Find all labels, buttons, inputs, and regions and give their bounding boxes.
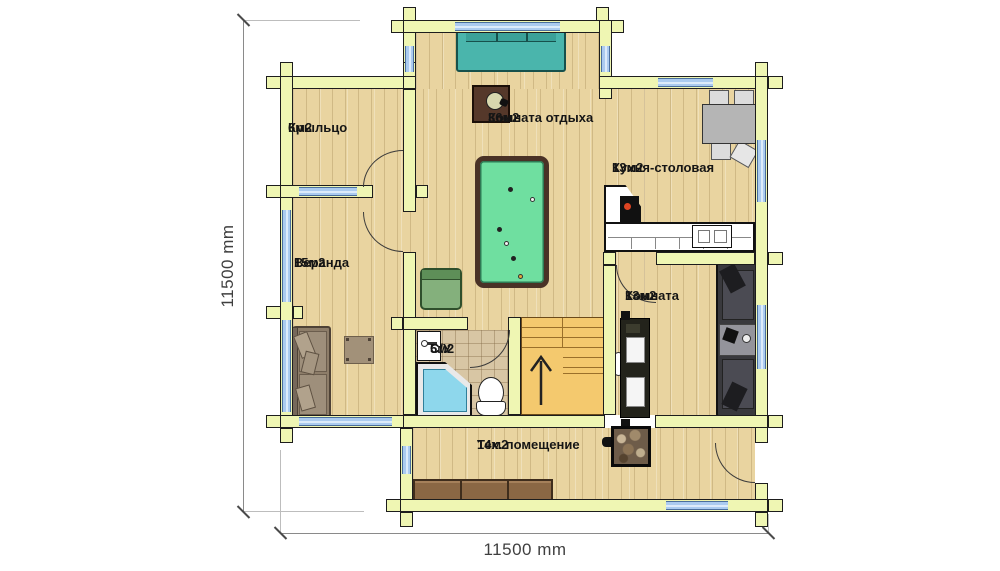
veranda-sofa — [287, 326, 331, 420]
log-end — [391, 20, 404, 33]
log-end — [768, 415, 783, 428]
window-lounge-top — [455, 22, 560, 31]
staircase — [521, 317, 605, 415]
billiard-ball — [497, 227, 502, 232]
window-veranda-bottom — [299, 417, 392, 426]
extension-line — [280, 450, 281, 533]
teal-sofa — [456, 29, 566, 72]
log-end — [768, 499, 783, 512]
log-end — [755, 62, 768, 77]
window-tech-bottom — [666, 501, 728, 510]
dimension-line-left — [243, 20, 244, 512]
tv-cabinet — [620, 318, 650, 418]
billiard-ball — [530, 197, 535, 202]
wall-room-left — [603, 265, 616, 415]
room-area: 36м2 — [488, 110, 519, 126]
dining-table — [702, 104, 758, 144]
armchair-back — [422, 270, 460, 280]
wall-top-left — [280, 76, 416, 89]
stair-treads — [563, 318, 606, 374]
billiard-table — [475, 156, 549, 288]
dining-chair — [711, 143, 731, 160]
log-end — [280, 428, 293, 443]
log-end — [599, 88, 612, 99]
log-end — [416, 185, 428, 198]
wall-right — [755, 76, 768, 443]
side-table — [344, 336, 374, 364]
stove — [620, 196, 639, 222]
room-area: 13м2 — [625, 288, 656, 304]
kitchen-sink — [692, 225, 732, 248]
log-end — [596, 7, 609, 21]
room-area: 14м2 — [477, 437, 508, 453]
cabinet-leg — [621, 311, 630, 320]
log-end — [266, 185, 281, 198]
log-end — [755, 512, 768, 527]
cabinet-panel — [626, 377, 645, 407]
sink-bowl — [698, 230, 710, 243]
log-end — [403, 7, 416, 21]
cabinet-divider — [460, 481, 462, 501]
log-end — [293, 306, 303, 319]
wall-bathroom-top — [403, 317, 468, 330]
extension-line — [244, 511, 364, 512]
log-end — [400, 512, 413, 527]
table-corner — [368, 358, 371, 361]
window-bump-left — [405, 46, 414, 72]
sink-bowl — [714, 230, 727, 243]
kitchen-counter — [604, 222, 755, 252]
billiard-ball — [504, 241, 509, 246]
cabinet-item — [626, 324, 640, 333]
window-room-right — [757, 305, 766, 369]
dimension-label-left: 11500 mm — [218, 216, 238, 316]
log-end — [611, 20, 624, 33]
wall-center-upper — [403, 89, 416, 212]
billiard-ball — [511, 256, 516, 261]
cabinet-divider — [507, 481, 509, 501]
table-corner — [368, 338, 371, 341]
fireplace-stove — [611, 426, 651, 467]
billiard-ball — [518, 274, 523, 279]
log-end — [280, 62, 293, 77]
log-end — [391, 317, 403, 330]
log-end — [768, 252, 783, 265]
billiard-ball — [508, 187, 513, 192]
wall-center-lower — [403, 252, 416, 415]
armchair — [420, 268, 462, 310]
dimension-label-bottom: 11500 mm — [470, 540, 580, 560]
floor-plan: Крыльцо 6м2 Комната отдыха 36м2 Кухня-ст… — [0, 0, 1000, 571]
extension-line — [768, 514, 769, 533]
wall-kitchen-divider-stub — [603, 252, 616, 265]
window-veranda-left — [282, 210, 291, 302]
wall-tech-top-right — [655, 415, 768, 428]
window-tech-left — [402, 446, 411, 474]
room-area: 5м2 — [430, 341, 454, 357]
window-bump-right — [601, 46, 610, 72]
log-end — [768, 76, 783, 89]
window-porch-divider — [299, 187, 357, 196]
window-kitchen-top — [658, 78, 713, 87]
extension-line — [244, 20, 360, 21]
log-end — [266, 76, 281, 89]
log-end — [266, 415, 281, 428]
room-area: 6м2 — [288, 120, 312, 136]
table-corner — [346, 338, 349, 341]
wall-kitchen-divider — [656, 252, 755, 265]
room-area: 13м2 — [612, 160, 643, 176]
window-lounge-left — [282, 320, 291, 412]
stove-burner — [624, 203, 631, 210]
window-kitchen-right — [757, 140, 766, 202]
faucet-knob — [421, 340, 428, 347]
table-corner — [346, 358, 349, 361]
cabinet-panel — [626, 337, 645, 363]
stairs-up-arrow — [526, 351, 556, 409]
wall-tech-top-left — [403, 415, 605, 428]
table-decor — [742, 334, 751, 343]
dark-sofa — [716, 256, 759, 420]
room-area: 15м2 — [294, 255, 325, 271]
toilet-base — [476, 401, 506, 416]
stair-treads — [522, 318, 563, 348]
dimension-line-bottom — [280, 533, 769, 534]
log-end — [386, 499, 401, 512]
bathtub-water — [423, 369, 467, 412]
log-end — [266, 306, 281, 319]
